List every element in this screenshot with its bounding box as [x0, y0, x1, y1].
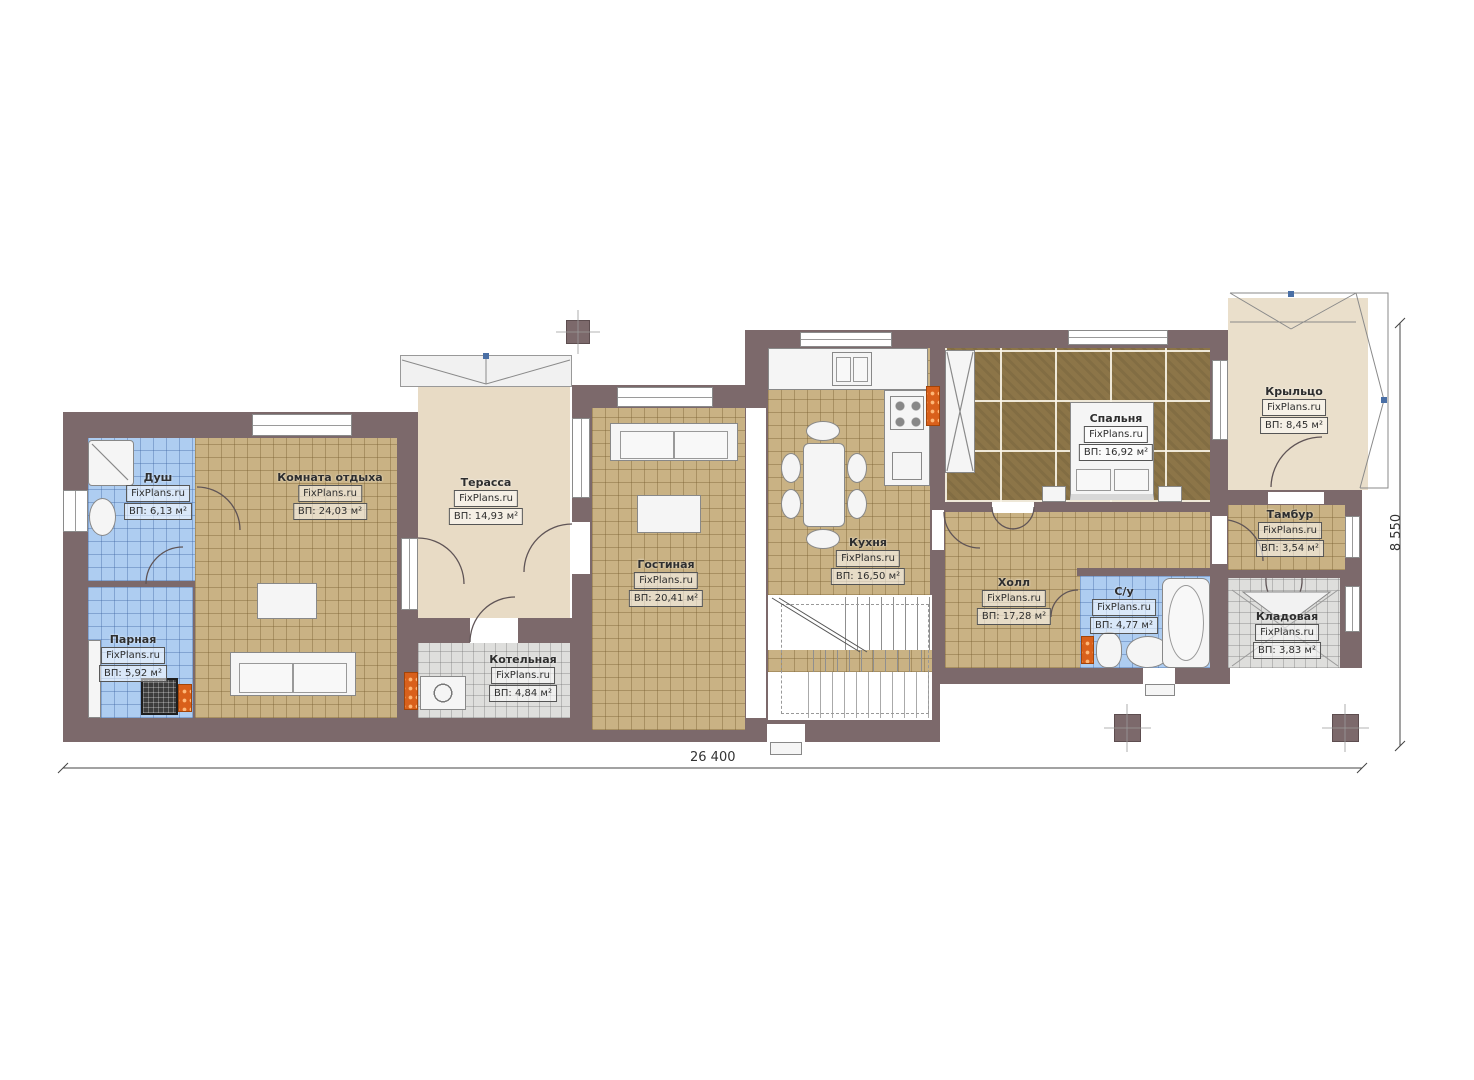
door-opening-holl-tambur: [1212, 516, 1227, 564]
sofa-cushion: [620, 431, 674, 459]
room-name: Крыльцо: [1260, 385, 1328, 398]
door-opening-terrace-kotelnaya: [470, 618, 518, 643]
entry-opening-holl: [1143, 668, 1175, 684]
room-watermark: FixPlans.ru: [491, 667, 555, 684]
dining-chair: [781, 453, 801, 483]
door-opening-spalnya: [992, 502, 1034, 513]
room-watermark: FixPlans.ru: [454, 490, 518, 507]
bathtub-basin: [1168, 585, 1204, 661]
wall-holl-su: [1077, 568, 1210, 576]
door-opening-kuhnya-holl: [932, 510, 944, 550]
radiator-su: [1081, 636, 1094, 664]
room-area: ВП: 16,92 м²: [1079, 444, 1153, 461]
sink-bowl: [853, 357, 868, 382]
room-name: Гостиная: [629, 558, 703, 571]
pillow: [1114, 469, 1149, 491]
room-watermark: FixPlans.ru: [634, 572, 698, 589]
stairs-walk-line: [781, 604, 929, 714]
sink-bowl: [836, 357, 851, 382]
wardrobe-spalnya: [945, 350, 975, 473]
window-kladovaya-right: [1345, 586, 1360, 632]
room-name: Тамбур: [1256, 508, 1324, 521]
room-name: Спальня: [1079, 412, 1153, 425]
boiler-washer: [420, 676, 466, 710]
table-gostinaya: [637, 495, 701, 533]
window-tambur-right: [1345, 516, 1360, 558]
room-name: Котельная: [489, 653, 557, 666]
toilet: [1096, 632, 1122, 668]
roof-node-porch-top: [1288, 291, 1294, 297]
room-label-terassa: Терасса FixPlans.ru ВП: 14,93 м²: [449, 476, 523, 525]
radiator-kotelnaya: [404, 672, 418, 710]
room-label-tambur: Тамбур FixPlans.ru ВП: 3,54 м²: [1256, 508, 1324, 557]
room-area: ВП: 24,03 м²: [293, 503, 367, 520]
room-watermark: FixPlans.ru: [1258, 522, 1322, 539]
sink-dush: [89, 498, 116, 536]
room-area: ВП: 5,92 м²: [99, 665, 167, 682]
sauna-stove: [141, 678, 178, 715]
sofa-cushion: [293, 663, 347, 693]
room-area: ВП: 16,50 м²: [831, 568, 905, 585]
nightstand: [1042, 486, 1066, 502]
table-komnata: [257, 583, 317, 619]
roof-node-porch-right: [1381, 397, 1387, 403]
dimension-bottom: 26 400: [690, 750, 736, 765]
room-label-su: С/у FixPlans.ru ВП: 4,77 м²: [1090, 585, 1158, 634]
room-area: ВП: 3,54 м²: [1256, 540, 1324, 557]
room-label-komnata-otdyha: Комната отдыха FixPlans.ru ВП: 24,03 м²: [277, 471, 382, 520]
floor-plan-canvas: Душ FixPlans.ru ВП: 6,13 м² Парная FixPl…: [0, 0, 1474, 1080]
entry-opening-bottom: [767, 724, 805, 742]
room-area: ВП: 14,93 м²: [449, 508, 523, 525]
room-floor-holl-top: [945, 512, 1210, 570]
room-label-parnaya: Парная FixPlans.ru ВП: 5,92 м²: [99, 633, 167, 682]
room-name: С/у: [1090, 585, 1158, 598]
room-label-kotelnaya: Котельная FixPlans.ru ВП: 4,84 м²: [489, 653, 557, 702]
room-area: ВП: 17,28 м²: [977, 608, 1051, 625]
window-komnata-top: [252, 414, 352, 436]
room-watermark: FixPlans.ru: [982, 590, 1046, 607]
room-area: ВП: 8,45 м²: [1260, 417, 1328, 434]
room-area: ВП: 3,83 м²: [1253, 642, 1321, 659]
dining-table: [803, 443, 845, 527]
room-name: Кухня: [831, 536, 905, 549]
room-watermark: FixPlans.ru: [101, 647, 165, 664]
room-area: ВП: 4,84 м²: [489, 685, 557, 702]
room-label-kryltso: Крыльцо FixPlans.ru ВП: 8,45 м²: [1260, 385, 1328, 434]
terrace-roof-band: [400, 355, 572, 387]
room-watermark: FixPlans.ru: [1092, 599, 1156, 616]
column-bottom-1: [1114, 714, 1141, 742]
room-watermark: FixPlans.ru: [836, 550, 900, 567]
room-label-gostinaya: Гостиная FixPlans.ru ВП: 20,41 м²: [629, 558, 703, 607]
room-name: Кладовая: [1253, 610, 1321, 623]
kitchen-sink: [832, 352, 872, 386]
nightstand: [1158, 486, 1182, 502]
sofa-komnata: [230, 652, 356, 696]
entry-step-holl: [1145, 684, 1175, 696]
room-watermark: FixPlans.ru: [298, 485, 362, 502]
sofa-gostinaya: [610, 423, 738, 461]
column-top: [566, 320, 590, 344]
room-label-kuhnya: Кухня FixPlans.ru ВП: 16,50 м²: [831, 536, 905, 585]
room-area: ВП: 6,13 м²: [124, 503, 192, 520]
dining-chair: [847, 489, 867, 519]
door-opening-terrace-gostinaya: [572, 522, 590, 574]
room-name: Душ: [124, 471, 192, 484]
room-name: Терасса: [449, 476, 523, 489]
room-name: Комната отдыха: [277, 471, 382, 484]
room-area: ВП: 20,41 м²: [629, 590, 703, 607]
room-name: Парная: [99, 633, 167, 646]
room-area: ВП: 4,77 м²: [1090, 617, 1158, 634]
kitchen-stove: [890, 396, 924, 430]
window-kuhnya-top: [800, 332, 892, 347]
bathtub: [1162, 578, 1210, 668]
pillow: [1076, 469, 1111, 491]
sofa-cushion: [674, 431, 728, 459]
room-watermark: FixPlans.ru: [1262, 399, 1326, 416]
window-gostinaya-left: [572, 418, 590, 498]
room-label-holl: Холл FixPlans.ru ВП: 17,28 м²: [977, 576, 1051, 625]
window-dush-left: [63, 490, 88, 532]
passage-gostinaya-kitchen: [746, 408, 766, 718]
room-label-spalnya: Спальня FixPlans.ru ВП: 16,92 м²: [1079, 412, 1153, 461]
entry-step-bottom: [770, 742, 802, 755]
opening-komnata-terrace: [401, 538, 418, 610]
radiator-parnaya: [178, 684, 192, 712]
sofa-cushion: [239, 663, 293, 693]
kitchen-appliance: [892, 452, 922, 480]
room-watermark: FixPlans.ru: [1084, 426, 1148, 443]
room-label-dush: Душ FixPlans.ru ВП: 6,13 м²: [124, 471, 192, 520]
dining-chair: [806, 421, 840, 441]
door-opening-tambur-kryltso: [1268, 492, 1324, 504]
dining-chair: [781, 489, 801, 519]
radiator-kuhnya: [926, 386, 940, 426]
window-gostinaya-top: [617, 387, 713, 407]
room-watermark: FixPlans.ru: [126, 485, 190, 502]
wall-tambur-kladovaya: [1228, 570, 1345, 578]
window-spalnya-right: [1212, 360, 1228, 440]
room-watermark: FixPlans.ru: [1255, 624, 1319, 641]
window-spalnya-top: [1068, 330, 1168, 345]
column-bottom-2: [1332, 714, 1359, 742]
room-label-kladovaya: Кладовая FixPlans.ru ВП: 3,83 м²: [1253, 610, 1321, 659]
dining-chair: [847, 453, 867, 483]
dimension-right: 8 550: [1389, 514, 1404, 551]
room-name: Холл: [977, 576, 1051, 589]
